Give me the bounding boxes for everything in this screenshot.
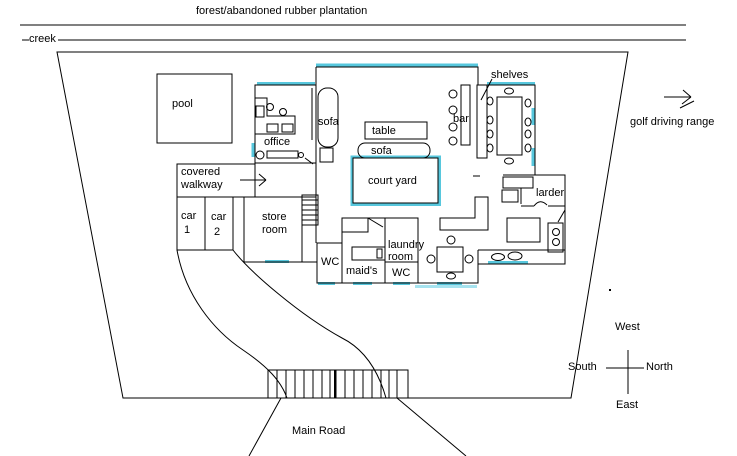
- car2-label-line2: 2: [214, 226, 220, 238]
- main-road-label: Main Road: [292, 425, 345, 437]
- store-room-label-line1: store: [262, 211, 286, 223]
- table-label: table: [372, 125, 396, 137]
- covered-walkway-label-line2: walkway: [181, 179, 223, 191]
- compass-cross: [606, 350, 644, 394]
- car1-label-line1: car: [181, 210, 196, 222]
- sofa-courtyard-label: sofa: [371, 145, 392, 157]
- compass-south-label: South: [568, 361, 597, 373]
- creek-label: creek: [29, 33, 56, 45]
- wc-left-label: WC: [321, 256, 339, 268]
- stray-dot: [609, 289, 611, 291]
- bar-label: bar: [453, 113, 469, 125]
- compass-west-label: West: [615, 321, 640, 333]
- office-label: office: [264, 136, 290, 148]
- square-table: [427, 236, 473, 279]
- dining-table: [487, 88, 531, 164]
- stairs: [302, 195, 318, 225]
- pool-area: [157, 74, 232, 143]
- shelves-unit: [477, 79, 492, 158]
- bar-counter: [449, 85, 480, 176]
- maids-label: maid's: [346, 265, 377, 277]
- entrance-gate: [268, 370, 408, 398]
- store-room-label-line2: room: [262, 224, 287, 236]
- covered-walkway-label-line1: covered: [181, 166, 220, 178]
- living-room-walls: [316, 67, 535, 197]
- l-shaped-sofa: [440, 197, 488, 230]
- floor-plan: forest/abandoned rubber plantation creek…: [0, 0, 737, 456]
- larder-label: larder: [536, 187, 564, 199]
- compass-north-label: North: [646, 361, 673, 373]
- compass-east-label: East: [616, 399, 638, 411]
- shelves-label: shelves: [491, 69, 528, 81]
- car1-label-line2: 1: [184, 224, 190, 236]
- wc-right-label: WC: [392, 267, 410, 279]
- creek-lines: [20, 25, 686, 40]
- laundry-label-line2: room: [388, 251, 413, 263]
- floor-plan-drawing: [0, 0, 737, 456]
- court-yard-label: court yard: [368, 175, 417, 187]
- line-work: [20, 25, 694, 456]
- pool-label: pool: [172, 98, 193, 110]
- office-room: [255, 85, 316, 164]
- car2-label-line1: car: [211, 211, 226, 223]
- golf-driving-range-label: golf driving range: [630, 116, 714, 128]
- golf-arrow-icon: [664, 90, 694, 108]
- laundry-label-line1: laundry: [388, 239, 424, 251]
- sofa-lounge-label: sofa: [318, 116, 339, 128]
- page-title: forest/abandoned rubber plantation: [196, 5, 367, 17]
